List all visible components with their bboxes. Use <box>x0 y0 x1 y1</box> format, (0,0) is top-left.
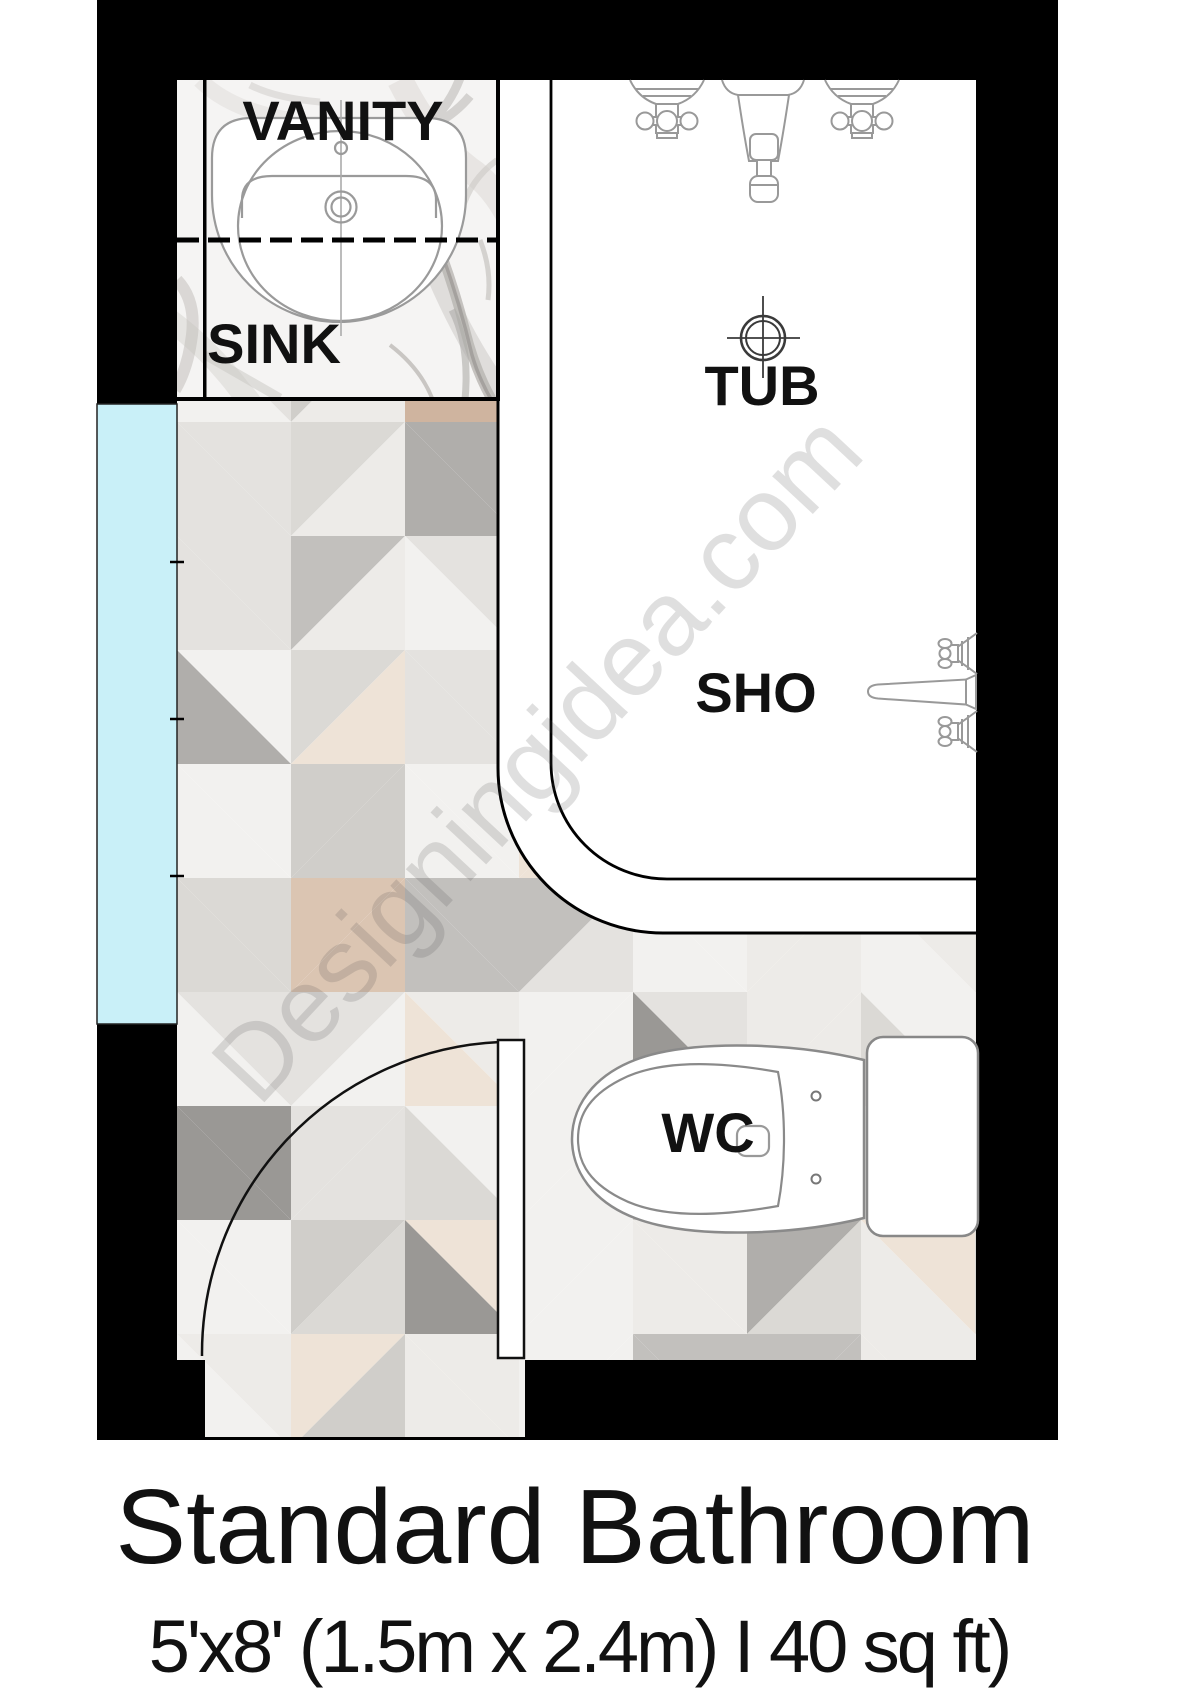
svg-text:Standard Bathroom: Standard Bathroom <box>115 1468 1034 1586</box>
svg-text:WC: WC <box>661 1101 754 1164</box>
svg-text:SINK: SINK <box>207 312 341 375</box>
svg-text:5'x8' (1.5m x 2.4m) I 40 sq ft: 5'x8' (1.5m x 2.4m) I 40 sq ft) <box>149 1605 1010 1688</box>
svg-text:TUB: TUB <box>704 354 819 417</box>
svg-text:VANITY: VANITY <box>242 89 443 152</box>
svg-text:SHO: SHO <box>695 661 816 724</box>
